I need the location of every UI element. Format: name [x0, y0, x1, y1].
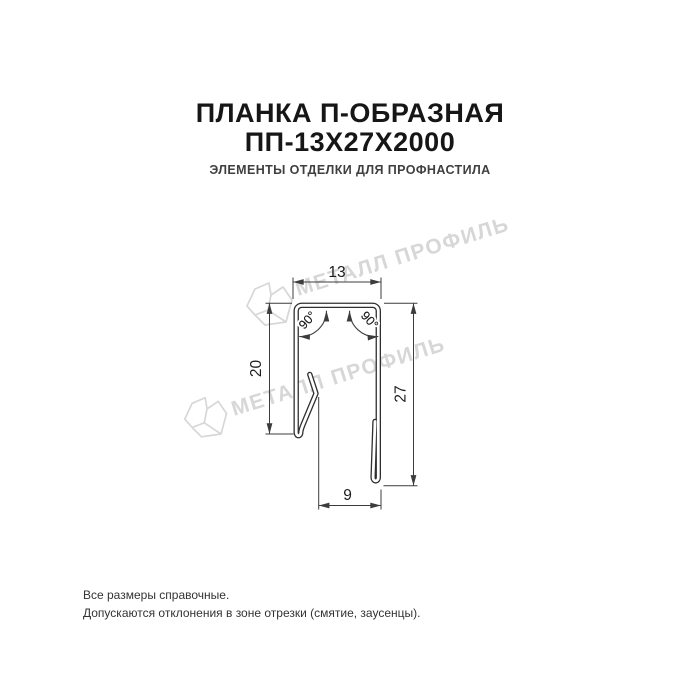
footer-note-2: Допускаются отклонения в зоне отрезки (с… — [83, 604, 420, 622]
footer-note-1: Все размеры справочные. — [83, 586, 420, 604]
dimension-left-height-label: 20 — [248, 360, 265, 378]
dimension-right-height-label: 27 — [393, 385, 410, 402]
dimension-top-width-label: 13 — [328, 264, 345, 281]
footer-notes: Все размеры справочные. Допускаются откл… — [83, 586, 420, 622]
angle-annotation-left: 90° 90° — [296, 309, 326, 337]
angle-left-label: 90° — [296, 309, 319, 332]
watermark-brand-text: МЕТАЛЛ ПРОФИЛЬ — [293, 213, 513, 301]
watermark-middle: МЕТАЛЛ ПРОФИЛЬ — [185, 333, 448, 437]
metall-profil-logo-icon — [185, 398, 227, 437]
dimension-bottom-width-label: 9 — [343, 487, 352, 504]
